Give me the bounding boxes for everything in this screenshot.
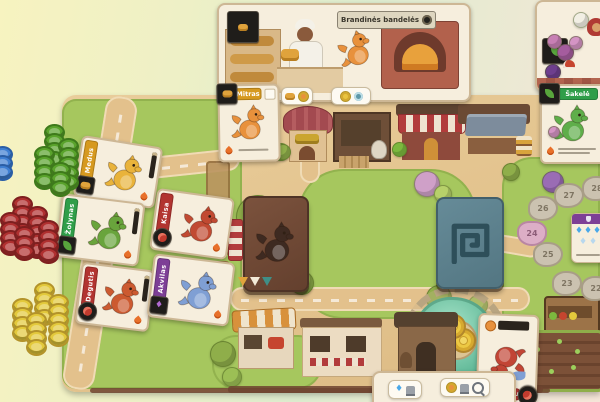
game-table: 28272624252322 — [0, 0, 600, 402]
token-layer — [0, 0, 600, 402]
leaf-token[interactable] — [50, 180, 71, 197]
meat-token-stack[interactable] — [14, 226, 35, 261]
meat-token[interactable] — [38, 247, 59, 264]
coin-token-stack[interactable] — [48, 294, 69, 347]
coin-token[interactable] — [48, 330, 69, 347]
leaf-token-stack[interactable] — [50, 162, 71, 197]
gem-token-stack[interactable] — [0, 146, 13, 181]
coin-token[interactable] — [26, 339, 47, 356]
meat-token-stack[interactable] — [38, 220, 59, 264]
meat-token[interactable] — [14, 244, 35, 261]
coin-token-stack[interactable] — [26, 312, 47, 356]
